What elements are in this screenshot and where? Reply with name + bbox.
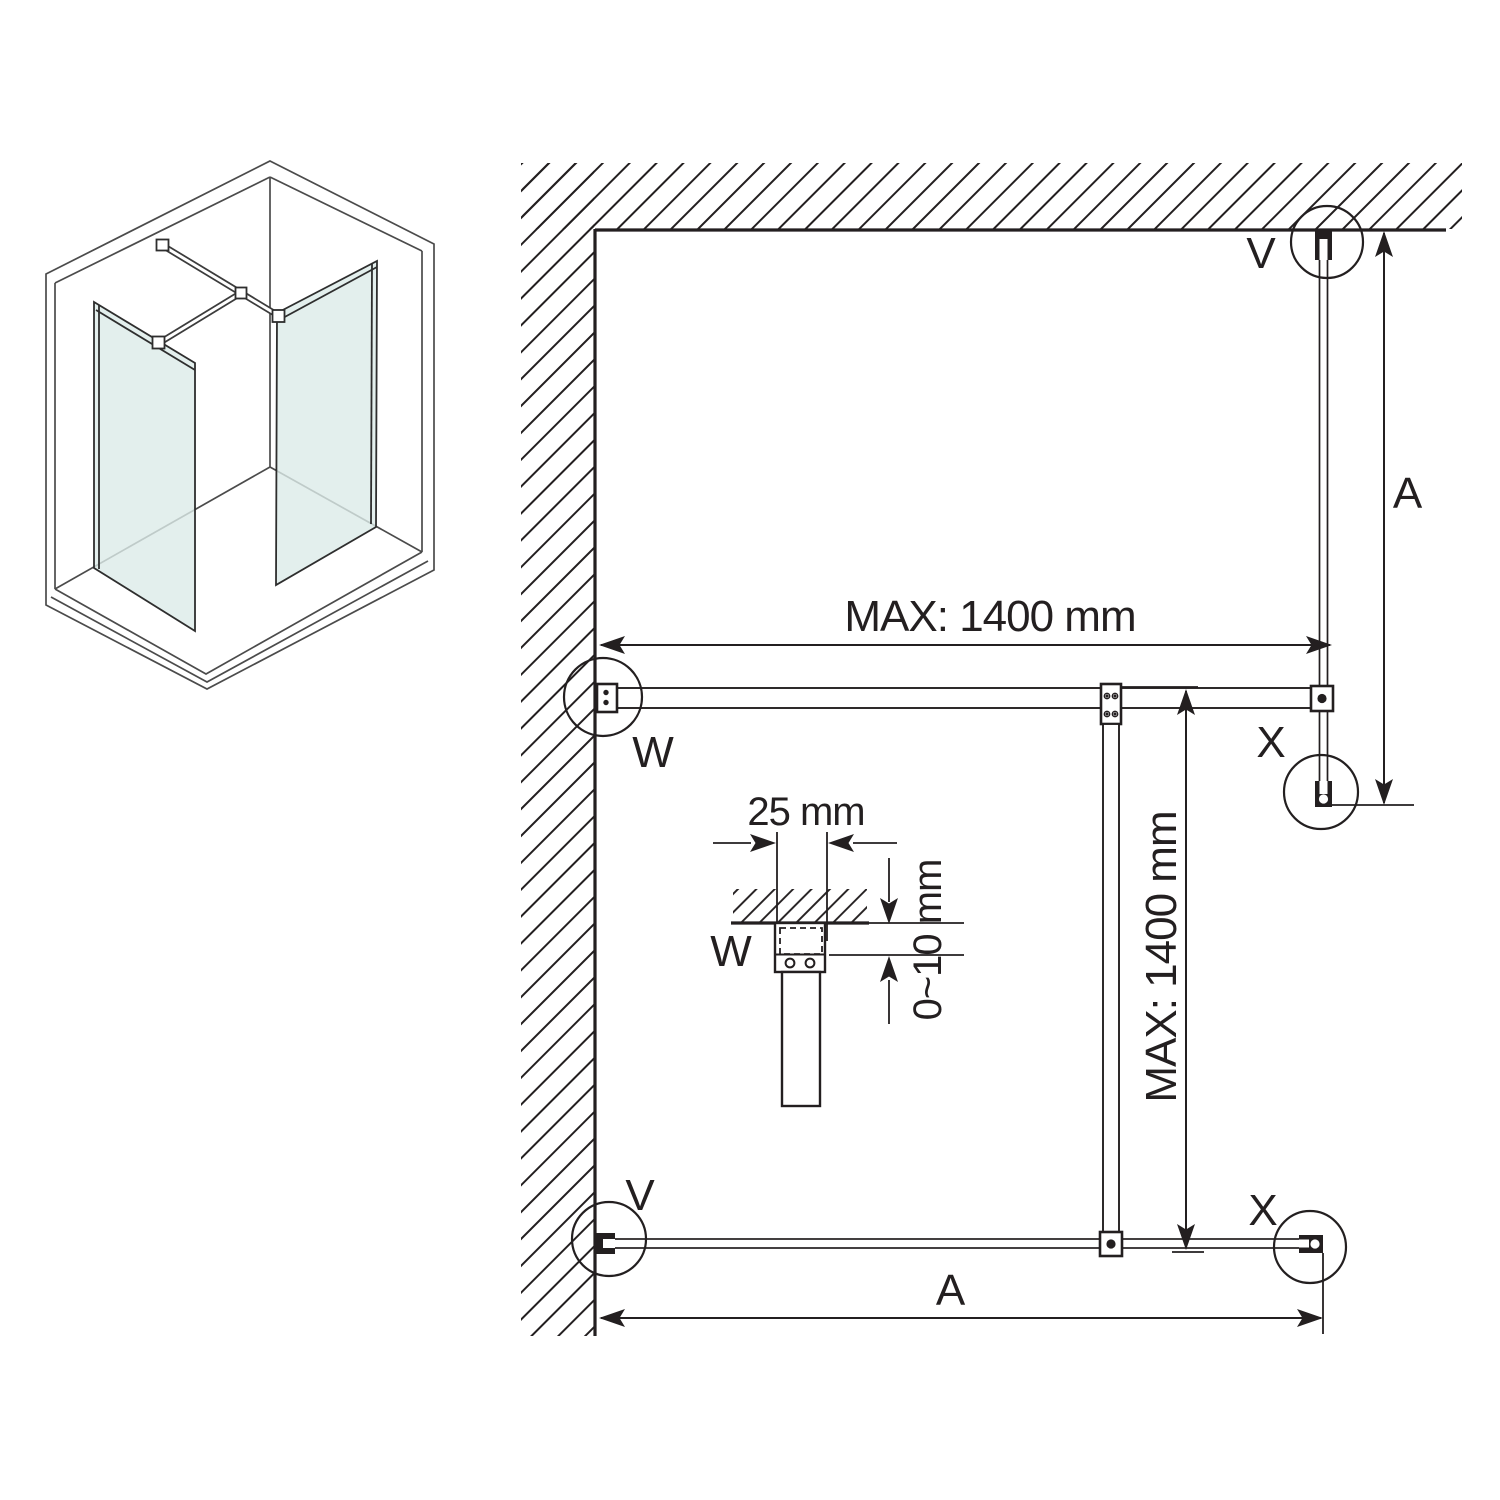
- inset-label-w: W: [710, 927, 752, 976]
- end-cap-x-bottom-slot: [1299, 1240, 1309, 1248]
- wall-bracket-w: [597, 684, 617, 712]
- label-x-right: X: [1256, 718, 1285, 767]
- left-wall-hatch: [521, 163, 594, 1336]
- installation-diagram: V X W V X MAX: 1400 mm MAX: 1400 mm: [0, 0, 1500, 1500]
- support-bar-vertical-body: [1103, 724, 1119, 1233]
- dim-max-vertical-text: MAX: 1400 mm: [1137, 811, 1186, 1102]
- wall-profile-v-top-slot: [1320, 239, 1328, 260]
- tee-joint-iso: [236, 288, 247, 299]
- end-cap-x-right-slot: [1320, 781, 1328, 794]
- inset-bracket-screw: [786, 959, 795, 968]
- inset-support-bar: [782, 972, 820, 1106]
- inset-width-text: 25 mm: [747, 790, 864, 834]
- wall-anchor-iso: [157, 240, 169, 251]
- dim-max-horizontal-text: MAX: 1400 mm: [844, 592, 1135, 641]
- support-bar-vertical: [1100, 724, 1122, 1256]
- top-wall-hatch: [522, 163, 1462, 229]
- glass-clamp-pin: [1106, 1239, 1115, 1248]
- glass-clamp-left-iso: [153, 337, 165, 349]
- end-cap-x-bottom-screw: [1310, 1239, 1319, 1248]
- inset-bracket-screw: [806, 959, 815, 968]
- wall-profile-v-bottom-slot: [603, 1239, 615, 1248]
- inset-offset-text: 0~10 mm: [906, 860, 950, 1021]
- support-bar-horizontal-body: [616, 688, 1312, 708]
- label-w: W: [632, 728, 674, 777]
- label-v-top: V: [1246, 229, 1276, 278]
- glass-right-edge-thickness: [371, 264, 372, 524]
- wall-bracket-screw: [603, 690, 608, 695]
- glass-clamp-right-iso: [273, 310, 285, 322]
- glass-clamp-pin: [1317, 694, 1326, 703]
- label-v-bottom: V: [625, 1171, 655, 1220]
- end-cap-x-right-screw: [1319, 794, 1328, 803]
- inset-bracket-body: [775, 923, 825, 972]
- label-x-bottom: X: [1248, 1186, 1277, 1235]
- glass-bottom-plan: [614, 1239, 1302, 1248]
- dim-a-right-text: A: [1393, 469, 1423, 518]
- wall-bracket-screw: [603, 700, 608, 705]
- glass-right-plan: [1320, 237, 1328, 800]
- dim-a-bottom-text: A: [936, 1266, 966, 1315]
- inset-wall-hatch: [733, 889, 867, 922]
- tee-connector: [1101, 684, 1121, 724]
